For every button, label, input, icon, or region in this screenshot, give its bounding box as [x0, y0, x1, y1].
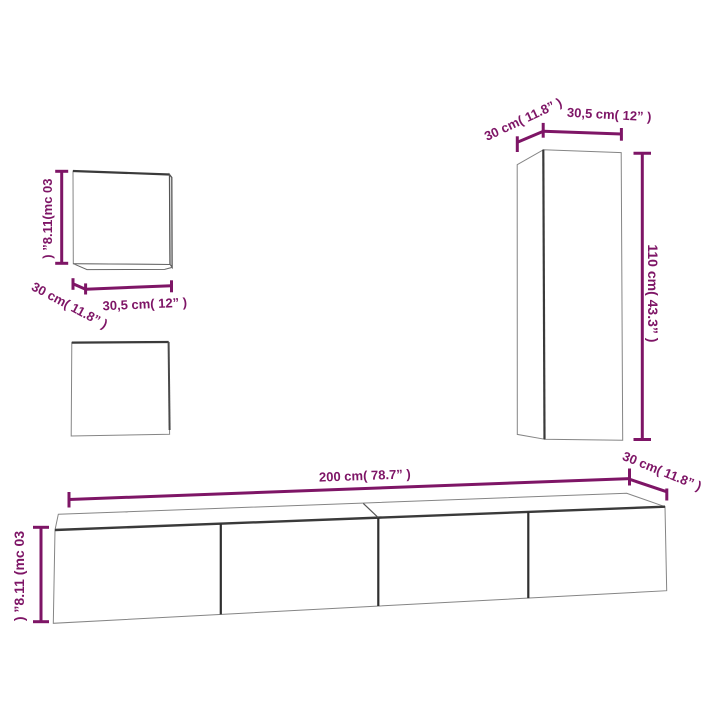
- svg-text:) ”8.11(mc 03: ) ”8.11(mc 03: [40, 178, 55, 258]
- svg-text:) ”8.11 (mc 03: ) ”8.11 (mc 03: [11, 531, 27, 621]
- svg-text:110 cm( 43.3” ): 110 cm( 43.3” ): [645, 244, 661, 342]
